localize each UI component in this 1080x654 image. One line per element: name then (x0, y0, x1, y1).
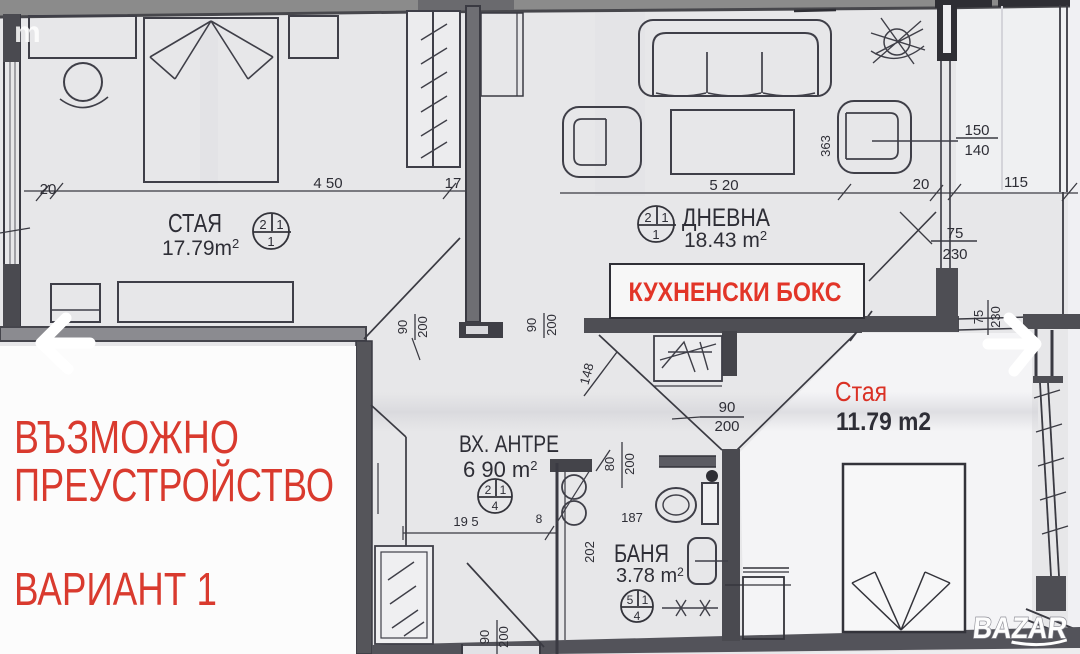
svg-text:СТАЯ: СТАЯ (168, 208, 222, 238)
svg-text:187: 187 (621, 510, 643, 525)
svg-text:230: 230 (942, 246, 967, 263)
svg-text:1: 1 (642, 593, 649, 607)
svg-text:115: 115 (1004, 174, 1028, 191)
svg-text:6 90 m2: 6 90 m2 (463, 457, 538, 482)
svg-text:2: 2 (485, 483, 492, 497)
svg-text:1: 1 (500, 483, 507, 497)
svg-text:90: 90 (395, 320, 410, 334)
svg-text:75: 75 (947, 225, 964, 242)
svg-text:19 5: 19 5 (453, 514, 478, 529)
svg-text:200: 200 (622, 453, 637, 475)
svg-text:ВЪЗМОЖНО: ВЪЗМОЖНО (14, 411, 239, 463)
svg-text:2: 2 (644, 210, 651, 225)
svg-text:BAZAR: BAZAR (971, 612, 1069, 645)
svg-text:8: 8 (536, 512, 543, 526)
svg-text:3.78 m2: 3.78 m2 (616, 565, 684, 587)
svg-text:200: 200 (415, 316, 430, 338)
svg-text:80: 80 (602, 457, 617, 471)
svg-text:1: 1 (267, 234, 274, 249)
svg-text:2: 2 (259, 217, 266, 232)
svg-text:20: 20 (40, 181, 57, 198)
svg-text:m: m (14, 16, 41, 49)
svg-text:1: 1 (661, 210, 668, 225)
svg-text:20: 20 (913, 176, 930, 193)
svg-text:11.79 m2: 11.79 m2 (836, 408, 931, 436)
svg-text:5: 5 (627, 593, 634, 607)
svg-text:КУХНЕНСКИ БОКС: КУХНЕНСКИ БОКС (629, 277, 842, 307)
svg-text:Стая: Стая (835, 376, 887, 407)
svg-text:150: 150 (964, 122, 989, 139)
svg-text:363: 363 (818, 135, 833, 157)
svg-text:ПРЕУСТРОЙСТВО: ПРЕУСТРОЙСТВО (14, 459, 334, 511)
svg-text:ВХ. АНТРЕ: ВХ. АНТРЕ (459, 431, 559, 458)
svg-text:1: 1 (276, 217, 283, 232)
svg-text:230: 230 (988, 306, 1003, 328)
svg-text:202: 202 (582, 541, 597, 563)
svg-text:БАНЯ: БАНЯ (614, 540, 669, 568)
svg-text:17: 17 (445, 175, 462, 192)
svg-text:140: 140 (964, 142, 989, 159)
svg-text:90: 90 (477, 630, 492, 644)
svg-text:4: 4 (492, 499, 499, 513)
svg-text:17.79m2: 17.79m2 (162, 236, 239, 260)
svg-text:200: 200 (496, 626, 511, 648)
svg-text:90: 90 (524, 318, 539, 332)
svg-text:1: 1 (652, 227, 659, 242)
svg-text:4: 4 (634, 609, 641, 623)
svg-text:ВАРИАНТ 1: ВАРИАНТ 1 (14, 563, 217, 615)
svg-text:75: 75 (971, 310, 986, 324)
svg-text:18.43 m2: 18.43 m2 (684, 228, 767, 252)
svg-text:90: 90 (719, 399, 736, 416)
svg-text:200: 200 (714, 418, 739, 435)
svg-text:ДНЕВНА: ДНЕВНА (682, 204, 770, 232)
svg-text:4 50: 4 50 (313, 175, 342, 192)
svg-text:5 20: 5 20 (709, 177, 738, 194)
svg-text:200: 200 (544, 314, 559, 336)
